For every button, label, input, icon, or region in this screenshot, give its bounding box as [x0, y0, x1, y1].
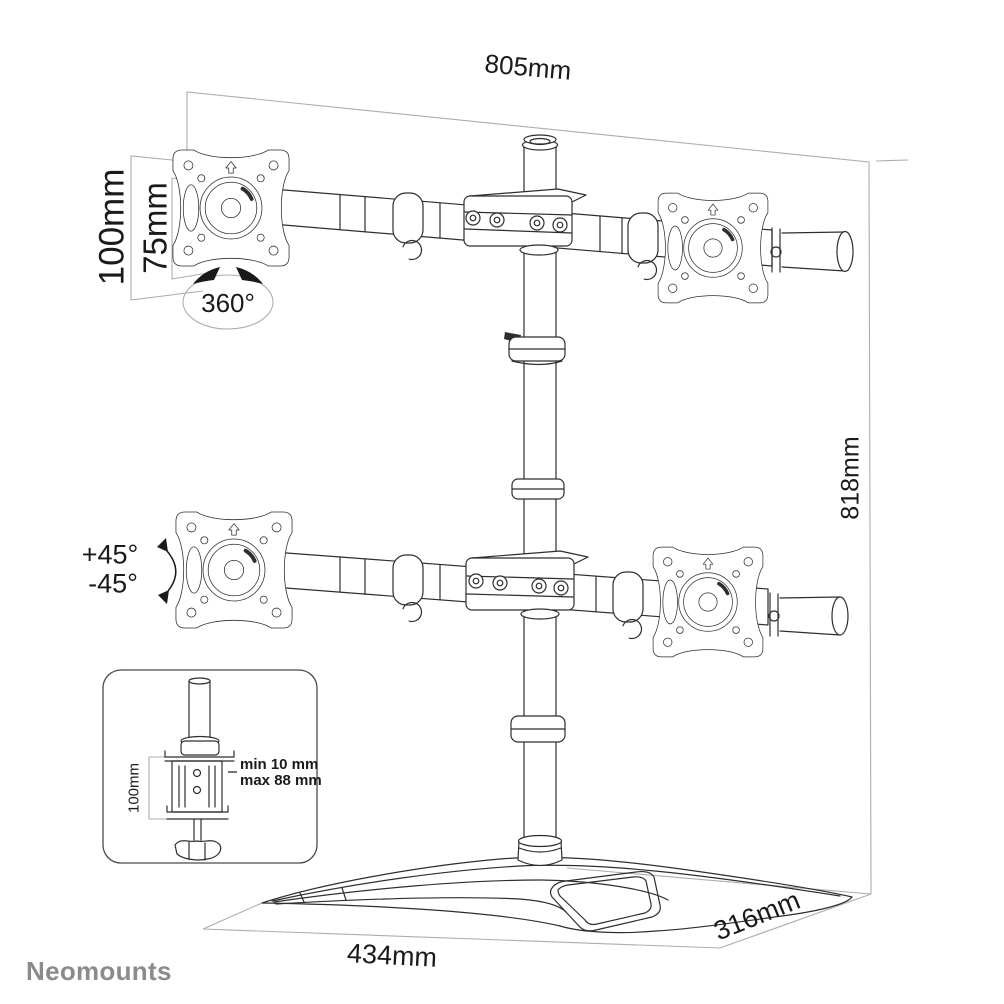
cable-clip: [613, 572, 643, 622]
dim-base-width: 434mm: [346, 940, 437, 972]
cable-clip: [393, 193, 423, 243]
brand-logo: Neomounts: [26, 958, 172, 984]
clamp-knob: [175, 841, 221, 860]
dim-total-width: 805mm: [484, 50, 573, 83]
tilt-indicator: [157, 538, 176, 604]
bottom-bar-center-block: [466, 551, 588, 619]
dim-total-height: 818mm: [839, 436, 864, 519]
vesa-plate-top-left: [173, 150, 289, 266]
vesa-plate-top-right: [658, 193, 768, 303]
tilt-down-label: -45°: [88, 571, 138, 598]
arm-end-caps: [769, 228, 853, 636]
top-bar-center-block: [464, 189, 586, 255]
inset-max-thickness-label: max 88 mm: [240, 773, 322, 788]
cable-clip: [393, 555, 423, 605]
vesa-plate-bottom-left: [176, 512, 292, 628]
base-boss: [518, 836, 562, 866]
inset-clamp-height-label: 100mm: [127, 763, 142, 813]
tilt-up-label: +45°: [82, 542, 139, 569]
rotation-label: 360°: [201, 290, 255, 316]
inset-min-thickness-label: min 10 mm: [240, 757, 318, 772]
product-technical-drawing: 805mm 100mm 75mm 360° +45° -45° 818mm 43…: [0, 0, 1004, 1004]
vesa-plate-bottom-right: [653, 547, 763, 657]
dim-vesa-outer: 100mm: [95, 169, 130, 286]
cable-clip: [628, 213, 658, 263]
dim-vesa-inner: 75mm: [139, 182, 172, 274]
